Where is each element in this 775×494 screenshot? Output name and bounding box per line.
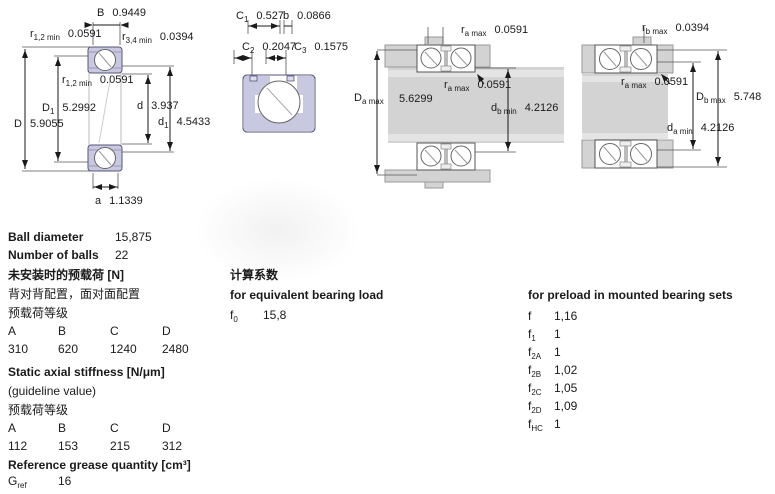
- factor-fhc-sub: HC: [531, 424, 543, 433]
- dim-C2-base: C: [242, 41, 250, 53]
- factor-f1-symbol: f1: [528, 328, 554, 343]
- dim-ra-mid-d3-symbol: ra max: [444, 80, 469, 93]
- ball-diameter-value: 15,875: [115, 231, 152, 244]
- dim-C1: C10.527: [236, 11, 284, 24]
- dim-Db-base: D: [696, 91, 704, 103]
- factor-f2d-sub: 2D: [531, 406, 541, 415]
- stiffness-class-b: B: [58, 422, 110, 435]
- d2-bearing-section: [243, 75, 315, 132]
- dim-C2-sub: 2: [250, 46, 254, 55]
- dim-D: D5.9055: [14, 119, 64, 130]
- preload-heading: 未安装时的预载荷 [N]: [8, 269, 124, 282]
- factor-f2b-symbol: f2B: [528, 364, 554, 379]
- dim-D-base: D: [14, 119, 22, 130]
- dim-r12-inner-sub: 1,2 min: [66, 79, 92, 88]
- factor-f2d-symbol: f2D: [528, 400, 554, 415]
- factor-row-f2b: f2B1,02: [528, 364, 577, 379]
- preload-value-b: 620: [58, 343, 110, 356]
- dim-da: da min4.2126: [667, 123, 734, 136]
- dim-r12-inner-symbol: r1,2 min: [62, 75, 92, 88]
- dim-Da-value-text: 5.6299: [399, 94, 433, 105]
- dim-db-symbol: db min: [491, 103, 517, 116]
- dim-db-value: 4.2126: [525, 103, 559, 116]
- dim-D1-value: 5.2992: [62, 103, 96, 116]
- factor-f2b-value: 1,02: [554, 364, 577, 379]
- dim-ra-top-symbol: ra max: [461, 25, 486, 38]
- dim-ra-mid-d3: ra max0.0591: [444, 80, 511, 93]
- factor-row-f1: f11: [528, 328, 561, 343]
- factor-f2a-sub: 2A: [531, 352, 541, 361]
- equivalent-load-heading: for equivalent bearing load: [230, 289, 383, 302]
- dim-d-base: d: [137, 101, 143, 112]
- dim-C1-sub: 1: [244, 15, 248, 24]
- dim-C3-symbol: C3: [294, 42, 306, 55]
- dim-ra-mid-d4-value: 0.0591: [654, 77, 688, 90]
- dim-d1: d14.5433: [158, 117, 210, 130]
- dim-da-symbol: da min: [667, 123, 693, 136]
- dim-Da-symbol: Da max: [354, 93, 384, 106]
- stiffness-class-header-row: A B C D: [8, 422, 228, 435]
- dim-B-base: B: [97, 8, 104, 19]
- dim-r34-sub: 3,4 min: [126, 36, 152, 45]
- dim-B: B0.9449: [97, 8, 146, 19]
- preload-class-d: D: [162, 325, 228, 338]
- factor-row-fhc: fHC1: [528, 418, 561, 433]
- number-of-balls-value: 22: [115, 249, 128, 262]
- dim-C1-value: 0.527: [256, 11, 284, 24]
- dim-ra-mid-d4-symbol: ra max: [621, 77, 646, 90]
- factor-f2d-value: 1,09: [554, 400, 577, 415]
- stiffness-class-note: 预载荷等级: [8, 404, 68, 417]
- preload-value-row: 310 620 1240 2480: [8, 343, 228, 356]
- dim-Db: Db max5.748: [696, 92, 761, 105]
- dim-a: a1.1339: [95, 196, 143, 207]
- dim-C2-symbol: C2: [242, 42, 254, 55]
- factor-f-symbol: f: [528, 310, 554, 325]
- dim-db: db min4.2126: [491, 103, 558, 116]
- dim-Da-sub: a max: [362, 97, 384, 106]
- dim-D1-sub: 1: [50, 107, 54, 116]
- dim-D-value: 5.9055: [30, 119, 64, 130]
- dim-C1-base: C: [236, 10, 244, 22]
- dim-ra-top: ra max0.0591: [461, 25, 528, 38]
- dim-r12-inner: r1,2 min0.0591: [62, 75, 134, 88]
- dim-Db-sub: b max: [704, 96, 726, 105]
- dim-rb-top: rb max0.0394: [642, 23, 709, 36]
- ball-diameter-label: Ball diameter: [8, 231, 83, 244]
- dim-C2: C20.2047: [242, 42, 296, 55]
- factor-f-base: f: [528, 309, 531, 323]
- dim-r12-top-symbol: r1,2 min: [30, 29, 60, 42]
- calc-factors-heading: 计算系数: [230, 269, 278, 282]
- dim-ra-mid-d3-sub: a max: [448, 84, 470, 93]
- number-of-balls-label: Number of balls: [8, 249, 99, 262]
- dim-b-value: 0.0866: [297, 11, 331, 22]
- dim-d: d3.937: [137, 101, 179, 112]
- factor-row-f: f1,16: [528, 310, 577, 325]
- dim-Db-symbol: Db max: [696, 92, 726, 105]
- dim-r34-value: 0.0394: [160, 32, 194, 45]
- dim-r34: r3,4 min0.0394: [122, 32, 194, 45]
- grease-symbol-base: G: [8, 474, 17, 488]
- dim-d1-value: 4.5433: [177, 117, 211, 130]
- factor-f2c-symbol: f2C: [528, 382, 554, 397]
- factor-f0-value: 15,8: [263, 309, 286, 322]
- bearing-datasheet-page: B0.9449 r1,2 min0.0591 r3,4 min0.0394 r1…: [0, 0, 775, 494]
- dim-C2-value: 0.2047: [262, 42, 296, 55]
- dim-a-value: 1.1339: [109, 196, 143, 207]
- preload-value-a: 310: [8, 343, 58, 356]
- dim-D1-symbol: D1: [42, 103, 54, 116]
- grease-heading: Reference grease quantity [cm³]: [8, 459, 191, 472]
- stiffness-value-c: 215: [110, 440, 162, 453]
- dim-r12-top: r1,2 min0.0591: [30, 29, 102, 42]
- factor-f1-sub: 1: [531, 334, 535, 343]
- dim-d-value: 3.937: [151, 101, 179, 112]
- factor-f-value: 1,16: [554, 310, 577, 325]
- stiffness-heading: Static axial stiffness [N/μm]: [8, 366, 165, 379]
- dim-C1-symbol: C1: [236, 11, 248, 24]
- dim-d1-sub: 1: [164, 121, 168, 130]
- stiffness-class-a: A: [8, 422, 58, 435]
- dim-a-base: a: [95, 196, 101, 207]
- dim-ra-mid-d4: ra max0.0591: [621, 77, 688, 90]
- dim-rb-top-sub: b max: [646, 27, 668, 36]
- dim-ra-top-value: 0.0591: [494, 25, 528, 38]
- stiffness-value-a: 112: [8, 440, 58, 453]
- grease-symbol: Gref: [8, 475, 27, 490]
- grease-value: 16: [58, 475, 71, 488]
- dim-Da-value: 5.6299: [399, 94, 433, 105]
- dim-ra-top-sub: a max: [465, 29, 487, 38]
- dim-rb-top-symbol: rb max: [642, 23, 667, 36]
- factor-row-f2a: f2A1: [528, 346, 561, 361]
- stiffness-guideline-note: (guideline value): [8, 385, 96, 398]
- stiffness-value-row: 112 153 215 312: [8, 440, 228, 453]
- dim-Da-base: D: [354, 92, 362, 104]
- dim-r12-top-value: 0.0591: [68, 29, 102, 42]
- grease-symbol-sub: ref: [17, 481, 26, 490]
- factor-fhc-symbol: fHC: [528, 418, 554, 433]
- factor-f2b-sub: 2B: [531, 370, 541, 379]
- preload-arrangement-note: 背对背配置，面对面配置: [8, 288, 140, 301]
- dim-ra-mid-d4-sub: a max: [625, 81, 647, 90]
- preload-class-note: 预载荷等级: [8, 307, 68, 320]
- preload-value-d: 2480: [162, 343, 228, 356]
- dim-Da-symbol-label: Da max: [354, 93, 384, 106]
- preload-class-c: C: [110, 325, 162, 338]
- dim-b: b0.0866: [283, 11, 331, 22]
- preload-value-c: 1240: [110, 343, 162, 356]
- factor-fhc-value: 1: [554, 418, 561, 433]
- dim-b-base: b: [283, 11, 289, 22]
- factor-row-f2d: f2D1,09: [528, 400, 577, 415]
- factor-f0-symbol: f0: [230, 309, 238, 324]
- stiffness-value-b: 153: [58, 440, 110, 453]
- factor-f2a-symbol: f2A: [528, 346, 554, 361]
- dim-C3-sub: 3: [302, 46, 306, 55]
- dim-rb-top-value: 0.0394: [675, 23, 709, 36]
- dim-D1: D15.2992: [42, 103, 96, 116]
- dim-Db-value: 5.748: [734, 92, 762, 105]
- dim-da-value: 4.2126: [701, 123, 735, 136]
- preload-class-a: A: [8, 325, 58, 338]
- dim-db-sub: b min: [497, 107, 517, 116]
- dim-C3-base: C: [294, 41, 302, 53]
- preload-sets-heading: for preload in mounted bearing sets: [528, 289, 733, 302]
- dim-C3: C30.1575: [294, 42, 348, 55]
- stiffness-class-d: D: [162, 422, 228, 435]
- stiffness-class-c: C: [110, 422, 162, 435]
- factor-f2a-value: 1: [554, 346, 561, 361]
- factor-f0-sub: 0: [233, 315, 237, 324]
- factor-f2c-sub: 2C: [531, 388, 541, 397]
- dim-r12-inner-value: 0.0591: [100, 75, 134, 88]
- dim-D1-base: D: [42, 102, 50, 114]
- dim-r34-symbol: r3,4 min: [122, 32, 152, 45]
- dim-B-value: 0.9449: [112, 8, 146, 19]
- factor-row-f2c: f2C1,05: [528, 382, 577, 397]
- factor-f2c-value: 1,05: [554, 382, 577, 397]
- preload-class-header-row: A B C D: [8, 325, 228, 338]
- stiffness-value-d: 312: [162, 440, 228, 453]
- dim-ra-mid-d3-value: 0.0591: [477, 80, 511, 93]
- dim-r12-top-sub: 1,2 min: [34, 33, 60, 42]
- dim-da-sub: a min: [673, 127, 693, 136]
- dim-C3-value: 0.1575: [314, 42, 348, 55]
- preload-class-b: B: [58, 325, 110, 338]
- dim-d1-symbol: d1: [158, 117, 169, 130]
- factor-f1-value: 1: [554, 328, 561, 343]
